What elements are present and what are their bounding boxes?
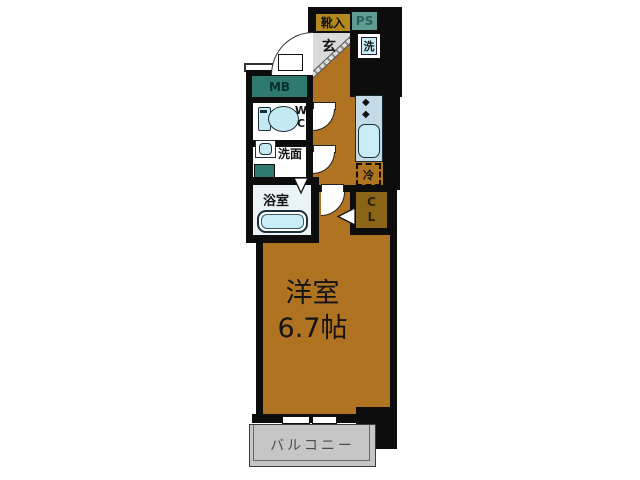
stove-burner-icon: ◆ xyxy=(362,109,370,120)
washer-label: 洗 xyxy=(364,38,375,54)
washer-pan-inner: 洗 xyxy=(361,37,377,55)
meter-box: MB xyxy=(252,76,307,97)
floor-plan: 玄 靴入 PS 洗 MB W C 洗面 xyxy=(0,0,640,480)
wall-room-right xyxy=(390,235,397,415)
main-room-label: 洋室 6.7帖 xyxy=(250,276,375,346)
bathroom-label: 浴室 xyxy=(263,190,289,209)
meter-box-label: MB xyxy=(269,80,290,94)
pipe-space-label: PS xyxy=(356,14,373,28)
genkan-label: 玄 xyxy=(322,36,336,56)
washer-pan: 洗 xyxy=(356,32,382,60)
closet-label: C L xyxy=(367,195,376,225)
duct-box xyxy=(254,164,275,178)
stove-burner-icon: ◆ xyxy=(362,97,370,108)
balcony-label: バルコニー xyxy=(250,435,375,455)
refrigerator-space: 冷 xyxy=(356,163,381,186)
closet-label-c: C xyxy=(367,195,376,209)
wall-bath-bottom xyxy=(246,235,319,243)
wall-column-right xyxy=(306,70,313,192)
bathtub-inner xyxy=(261,214,304,229)
closet-label-l: L xyxy=(368,210,376,224)
wall-kitchen-right xyxy=(383,95,400,190)
washroom-label: 洗面 xyxy=(278,145,302,162)
entry-door-leaf xyxy=(278,54,303,71)
kitchen-sink-icon xyxy=(358,124,380,158)
main-room-size: 6.7帖 xyxy=(278,313,348,344)
balcony: バルコニー xyxy=(249,424,376,467)
closet: C L xyxy=(356,192,387,228)
washbasin-bowl-icon xyxy=(259,143,272,155)
closet-door-icon xyxy=(336,207,356,226)
shoe-cabinet: 靴入 xyxy=(314,12,352,33)
folding-door-icon xyxy=(292,177,310,195)
toilet-handle-icon xyxy=(260,110,267,113)
main-room-name: 洋室 xyxy=(286,278,340,309)
pipe-space: PS xyxy=(352,12,377,30)
wc-label-w: W xyxy=(295,104,307,117)
balcony-window-segment xyxy=(282,416,310,424)
refrigerator-label: 冷 xyxy=(363,167,374,183)
wc-label-c: C xyxy=(297,117,305,130)
balcony-window-segment xyxy=(312,416,337,424)
outline-entry-v xyxy=(244,63,246,72)
wc-label: W C xyxy=(294,104,308,130)
shoe-cabinet-label: 靴入 xyxy=(321,14,345,31)
